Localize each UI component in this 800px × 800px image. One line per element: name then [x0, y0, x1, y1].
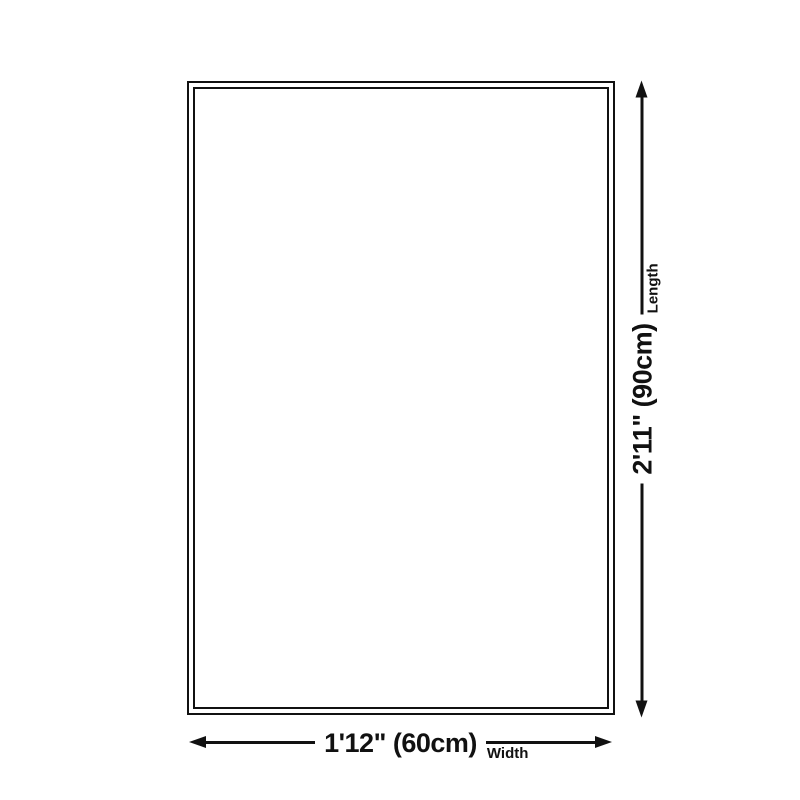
rug-outline [187, 81, 615, 715]
length-dimension-line [640, 97, 643, 314]
arrow-up-icon [635, 80, 647, 97]
rug-inner-border [193, 87, 609, 709]
arrow-left-icon [189, 736, 206, 748]
length-dimension-line-labeled: Length [613, 97, 669, 314]
width-value: 1'12" (60cm) [315, 730, 486, 757]
arrow-right-icon [595, 736, 612, 748]
length-dimension-line [640, 483, 643, 700]
width-dimension-line-labeled: Width [486, 714, 595, 770]
dimension-diagram: 2'11" (90cm) Length 1'12" (60cm) Width [0, 0, 800, 800]
width-dimension-line [486, 741, 595, 744]
length-dimension: 2'11" (90cm) Length [613, 80, 669, 717]
length-label: Length [645, 263, 660, 313]
width-label: Width [487, 746, 529, 761]
width-dimension-line [206, 741, 315, 744]
arrow-down-icon [635, 700, 647, 717]
width-dimension: 1'12" (60cm) Width [189, 714, 612, 770]
length-value: 2'11" (90cm) [629, 314, 656, 483]
